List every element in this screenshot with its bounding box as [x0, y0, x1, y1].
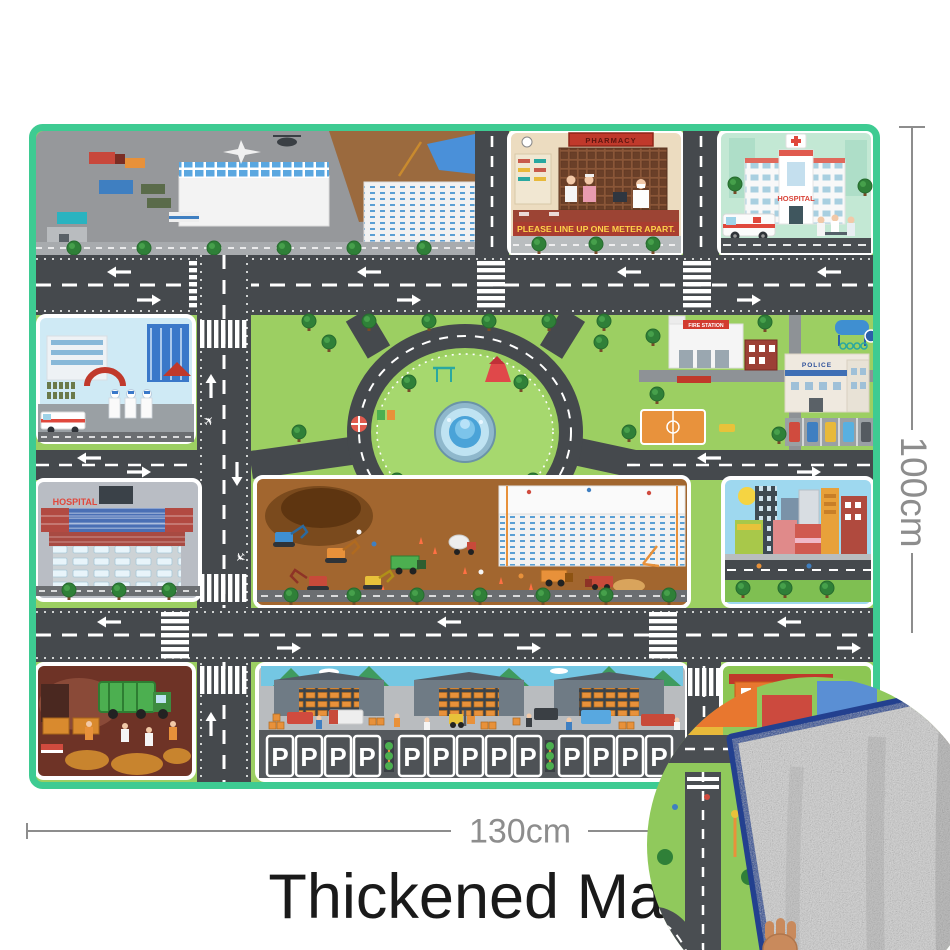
parking-space: P	[428, 736, 454, 776]
warehouse-panel: P P P P	[257, 664, 687, 780]
brick-annex	[745, 340, 777, 370]
height-dimension-line	[911, 127, 913, 430]
road-horizontal-top	[36, 255, 873, 315]
hand	[763, 918, 797, 950]
svg-text:P: P	[300, 742, 317, 772]
construction-panel	[255, 477, 689, 607]
parking-space: P	[267, 736, 293, 776]
parking-space: P	[457, 736, 483, 776]
pharmacy-panel: PHARMACY	[509, 131, 683, 255]
customer	[565, 176, 577, 203]
city-panel	[723, 478, 873, 606]
clock-icon	[522, 137, 532, 147]
garbage-yard-panel	[36, 664, 194, 778]
hospital-sign: HOSPITAL	[777, 194, 815, 203]
warehouse-building	[414, 672, 524, 716]
svg-text:P: P	[461, 742, 478, 772]
medics-in-suits	[109, 390, 152, 419]
pharmacy-notice: PLEASE LINE UP ONE METER APART.	[517, 225, 675, 234]
parking-space: P	[399, 736, 425, 776]
fire-station-building: FIRE STATION	[669, 316, 743, 368]
red-cross-icon	[786, 134, 806, 148]
fountain-icon	[435, 402, 495, 462]
stadium-sign: HOSPITAL	[53, 497, 98, 507]
road-vertical-pharmacy-right	[683, 131, 719, 255]
parking-space: P	[588, 736, 614, 776]
police-sign: POLICE	[802, 362, 832, 369]
sun-icon	[738, 487, 756, 505]
pharmacy-sign: PHARMACY	[585, 136, 636, 145]
svg-text:P: P	[592, 742, 609, 772]
caption: Thickened Mat	[268, 861, 681, 933]
stadium-panel: HOSPITAL	[36, 480, 200, 600]
fire-station-sign: FIRE STATION	[688, 323, 724, 329]
width-dimension-label: 130cm	[469, 813, 571, 852]
parasol-icon	[351, 416, 367, 432]
height-dimension-line	[911, 553, 913, 633]
medics-group	[817, 215, 855, 237]
svg-text:P: P	[563, 742, 580, 772]
svg-text:P: P	[358, 742, 375, 772]
industrial-area	[36, 131, 475, 258]
parking-space: P	[296, 736, 322, 776]
parking-space: P	[354, 736, 380, 776]
road-vertical-pharmacy-left	[475, 131, 509, 255]
plant-divider	[384, 740, 394, 772]
parking-row: P P P P	[259, 730, 685, 778]
parking-space: P	[559, 736, 585, 776]
warehouse-building	[554, 672, 664, 716]
road-vertical-main: ✈ ✈	[197, 255, 251, 782]
hospital-panel: HOSPITAL	[719, 131, 873, 255]
svg-text:P: P	[329, 742, 346, 772]
svg-text:P: P	[490, 742, 507, 772]
svg-text:P: P	[621, 742, 638, 772]
quarantine-panel	[38, 316, 194, 442]
road-horizontal-bottom	[36, 608, 873, 662]
width-dimension-line	[27, 830, 451, 832]
police-station-building: POLICE	[785, 354, 869, 412]
svg-text:P: P	[271, 742, 288, 772]
parking-lot-cars	[785, 418, 873, 446]
svg-text:P: P	[432, 742, 449, 772]
field-hospital-beds	[53, 546, 181, 586]
warehouse-building	[274, 672, 384, 716]
product-image: PHARMACY	[0, 0, 950, 950]
parking-space: P	[515, 736, 541, 776]
height-dimension-label: 100cm	[892, 436, 934, 547]
parking-space: P	[486, 736, 512, 776]
parking-space: P	[325, 736, 351, 776]
parking-space: P	[617, 736, 643, 776]
construction-building	[499, 486, 685, 566]
plant-divider	[545, 740, 555, 772]
svg-text:P: P	[403, 742, 420, 772]
svg-text:P: P	[519, 742, 536, 772]
basketball-court	[641, 410, 705, 444]
